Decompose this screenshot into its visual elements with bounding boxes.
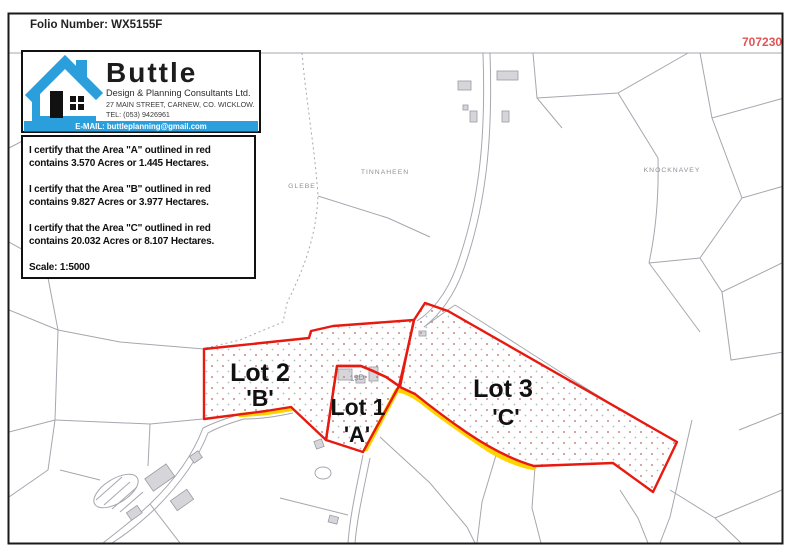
scale-label: Scale: 1:5000 xyxy=(29,262,90,273)
company-name: Buttle xyxy=(106,57,197,88)
grid-coordinate-label: 707230 xyxy=(742,35,782,49)
certificate-card: I certify that the Area "A" outlined in … xyxy=(22,136,255,278)
company-phone: TEL: (053) 9426961 xyxy=(106,110,170,119)
lot-1-label: Lot 1 xyxy=(331,394,386,420)
certificate-line: I certify that the Area "C" outlined in … xyxy=(29,223,211,234)
lot-3-letter: 'C' xyxy=(492,404,520,430)
lot-3-label: Lot 3 xyxy=(473,375,533,403)
company-tagline: Design & Planning Consultants Ltd. xyxy=(106,88,251,98)
townland-label-glebe: GLEBE xyxy=(288,183,316,190)
certificate-line: I certify that the Area "A" outlined in … xyxy=(29,145,211,156)
company-address: 27 MAIN STREET, CARNEW, CO. WICKLOW. xyxy=(106,100,255,109)
map-canvas: TINNAHEEN GLEBE KNOCKNAVEY 13D Lot 2 'B'… xyxy=(0,0,790,559)
door-icon xyxy=(50,91,63,118)
lot-2-label: Lot 2 xyxy=(230,359,290,387)
parcel-label: 13D xyxy=(349,372,365,383)
folio-map-document: TINNAHEEN GLEBE KNOCKNAVEY 13D Lot 2 'B'… xyxy=(0,0,790,559)
certificate-line: contains 9.827 Acres or 3.977 Hectares. xyxy=(29,197,209,208)
certificate-line: I certify that the Area "B" outlined in … xyxy=(29,184,211,195)
townland-label-knocknavey: KNOCKNAVEY xyxy=(644,167,701,174)
logo-card: Buttle Design & Planning Consultants Ltd… xyxy=(22,51,260,132)
certificate-line: contains 20.032 Acres or 8.107 Hectares. xyxy=(29,236,214,247)
company-email: E-MAIL: buttleplanning@gmail.com xyxy=(75,122,207,131)
townland-label-tinnaheen: TINNAHEEN xyxy=(361,169,409,176)
lot-1-letter: 'A' xyxy=(344,422,370,447)
lot-2-letter: 'B' xyxy=(246,385,274,411)
certificate-line: contains 3.570 Acres or 1.445 Hectares. xyxy=(29,158,209,169)
pond-icon xyxy=(315,467,331,479)
folio-number: Folio Number: WX5155F xyxy=(30,19,162,31)
